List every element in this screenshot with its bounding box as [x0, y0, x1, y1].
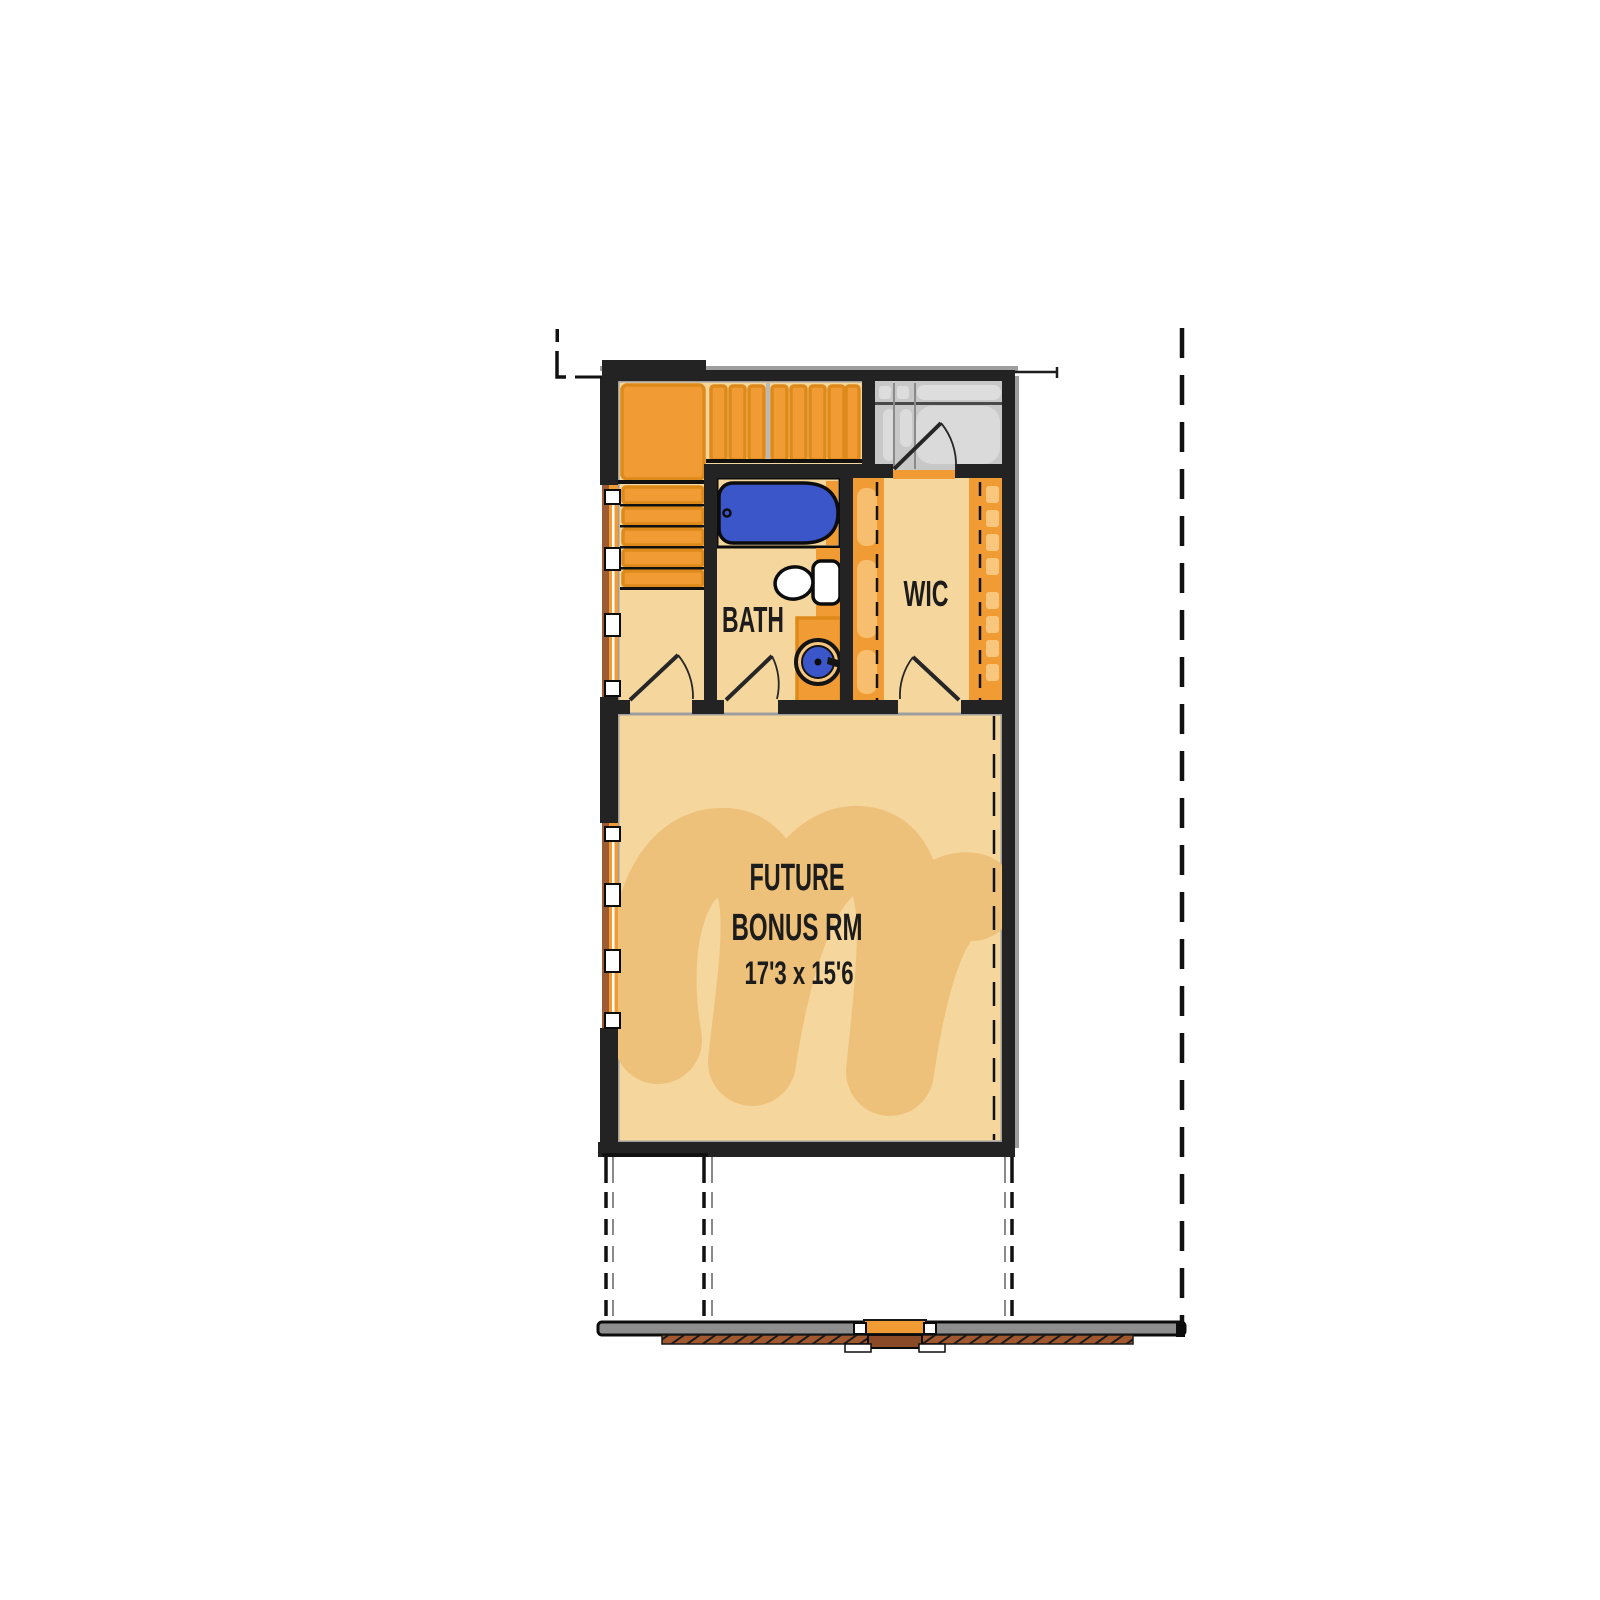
bath-left-wall [704, 464, 717, 714]
stair-tread [730, 386, 745, 460]
tread-line [620, 525, 706, 528]
shelf-item [986, 640, 999, 657]
window-jamb [605, 681, 620, 696]
stair-tread [846, 386, 859, 460]
window-jamb [605, 490, 620, 504]
floor-plan-page: BATH WIC FUTURE BONUS RM 17'3 x 15'6 [0, 0, 1600, 1600]
attic-fixture-square [897, 386, 909, 399]
sink-drain [815, 659, 822, 666]
attic-counter [917, 385, 1001, 400]
shelf-item [986, 664, 999, 681]
corner-mark-dash [556, 329, 560, 342]
tread-line [620, 504, 706, 507]
toilet-tank [813, 561, 840, 604]
step-tab [845, 1344, 871, 1352]
floor-plan-drawing: BATH WIC FUTURE BONUS RM 17'3 x 15'6 [0, 0, 1600, 1600]
hall-wall-stub [618, 700, 630, 714]
first-floor-wall-reference [598, 1320, 1185, 1352]
window-jamb [605, 884, 620, 906]
attic-line [914, 383, 916, 469]
stair-nosing-line [618, 480, 706, 484]
bonus-room-label-line2: BONUS RM [732, 907, 863, 949]
stair-upper-flight [706, 383, 862, 463]
corner-mark [557, 351, 566, 377]
window-band-lower [602, 823, 620, 1028]
stair-tread [791, 386, 806, 460]
wic-top-wall [955, 464, 1003, 478]
attic-fixture-square [879, 386, 891, 399]
left-wall-middle [600, 697, 618, 823]
stair-tread [623, 508, 703, 524]
wic-label: WIC [904, 573, 949, 614]
closet-contents [857, 488, 877, 546]
stair-tread [749, 386, 764, 460]
stair-edge-line [706, 459, 862, 463]
stair-tread [623, 487, 703, 503]
stair-tread [772, 386, 787, 460]
stair-tread [623, 550, 703, 566]
stair-break-line [766, 383, 770, 461]
stair-tread [623, 529, 703, 545]
shelf-item [986, 558, 999, 575]
stair-tread [711, 386, 726, 460]
shelf-item [986, 616, 999, 633]
shelf-item [986, 592, 999, 609]
shelf-item [986, 486, 999, 503]
tread-line [620, 546, 706, 549]
left-wall-upper [600, 376, 618, 485]
closet-contents [857, 560, 877, 638]
window-sill-strip [602, 485, 609, 697]
hall-wall-stub [961, 700, 1003, 714]
window-jamb [605, 827, 620, 841]
window-jamb [605, 950, 620, 972]
tread-line [620, 587, 706, 590]
top-wall [700, 370, 1015, 381]
window-sill-strip [602, 823, 609, 1028]
window-jamb [605, 1013, 620, 1028]
window-jamb [605, 548, 620, 570]
door-jamb-block [924, 1323, 936, 1334]
stair-landing [622, 385, 704, 479]
attic-fixture-blob [900, 409, 912, 447]
stair-tread [810, 386, 825, 460]
bath-row-top-wall [704, 464, 893, 478]
step-tab [919, 1344, 945, 1352]
window-glass-line [612, 827, 615, 1024]
door-jamb-block [854, 1323, 866, 1334]
entry-door-sill [864, 1320, 926, 1334]
bath-wic-wall [840, 464, 853, 714]
stair-lower-flight [620, 487, 706, 590]
bath-label: BATH [722, 599, 784, 640]
bonus-room-label-line1: FUTURE [750, 857, 845, 899]
bathtub-icon [719, 483, 838, 543]
bottom-wall-lip [602, 1153, 708, 1157]
stair-tread [623, 571, 703, 586]
tread-line [620, 567, 706, 570]
hall-wall-stub [692, 700, 724, 714]
shelf-item [986, 534, 999, 551]
stair-attic-divider-wall [862, 370, 875, 478]
lower-wall-end-cap [1176, 1322, 1185, 1337]
attic-door-threshold [893, 470, 955, 479]
window-jamb [605, 614, 620, 636]
entry-step [868, 1335, 922, 1348]
right-wall [1002, 370, 1015, 1157]
stair-tread [829, 386, 844, 460]
hall-wall-stub [778, 700, 898, 714]
bonus-room-dimensions: 17'3 x 15'6 [745, 955, 854, 991]
window-band-upper [602, 485, 620, 697]
shelf-item [986, 510, 999, 527]
right-wall-outer-line [1015, 376, 1019, 1148]
attic-line [893, 383, 895, 469]
closet-contents [857, 650, 877, 694]
window-glass-line [612, 489, 615, 693]
left-wall-lower [600, 1028, 618, 1157]
